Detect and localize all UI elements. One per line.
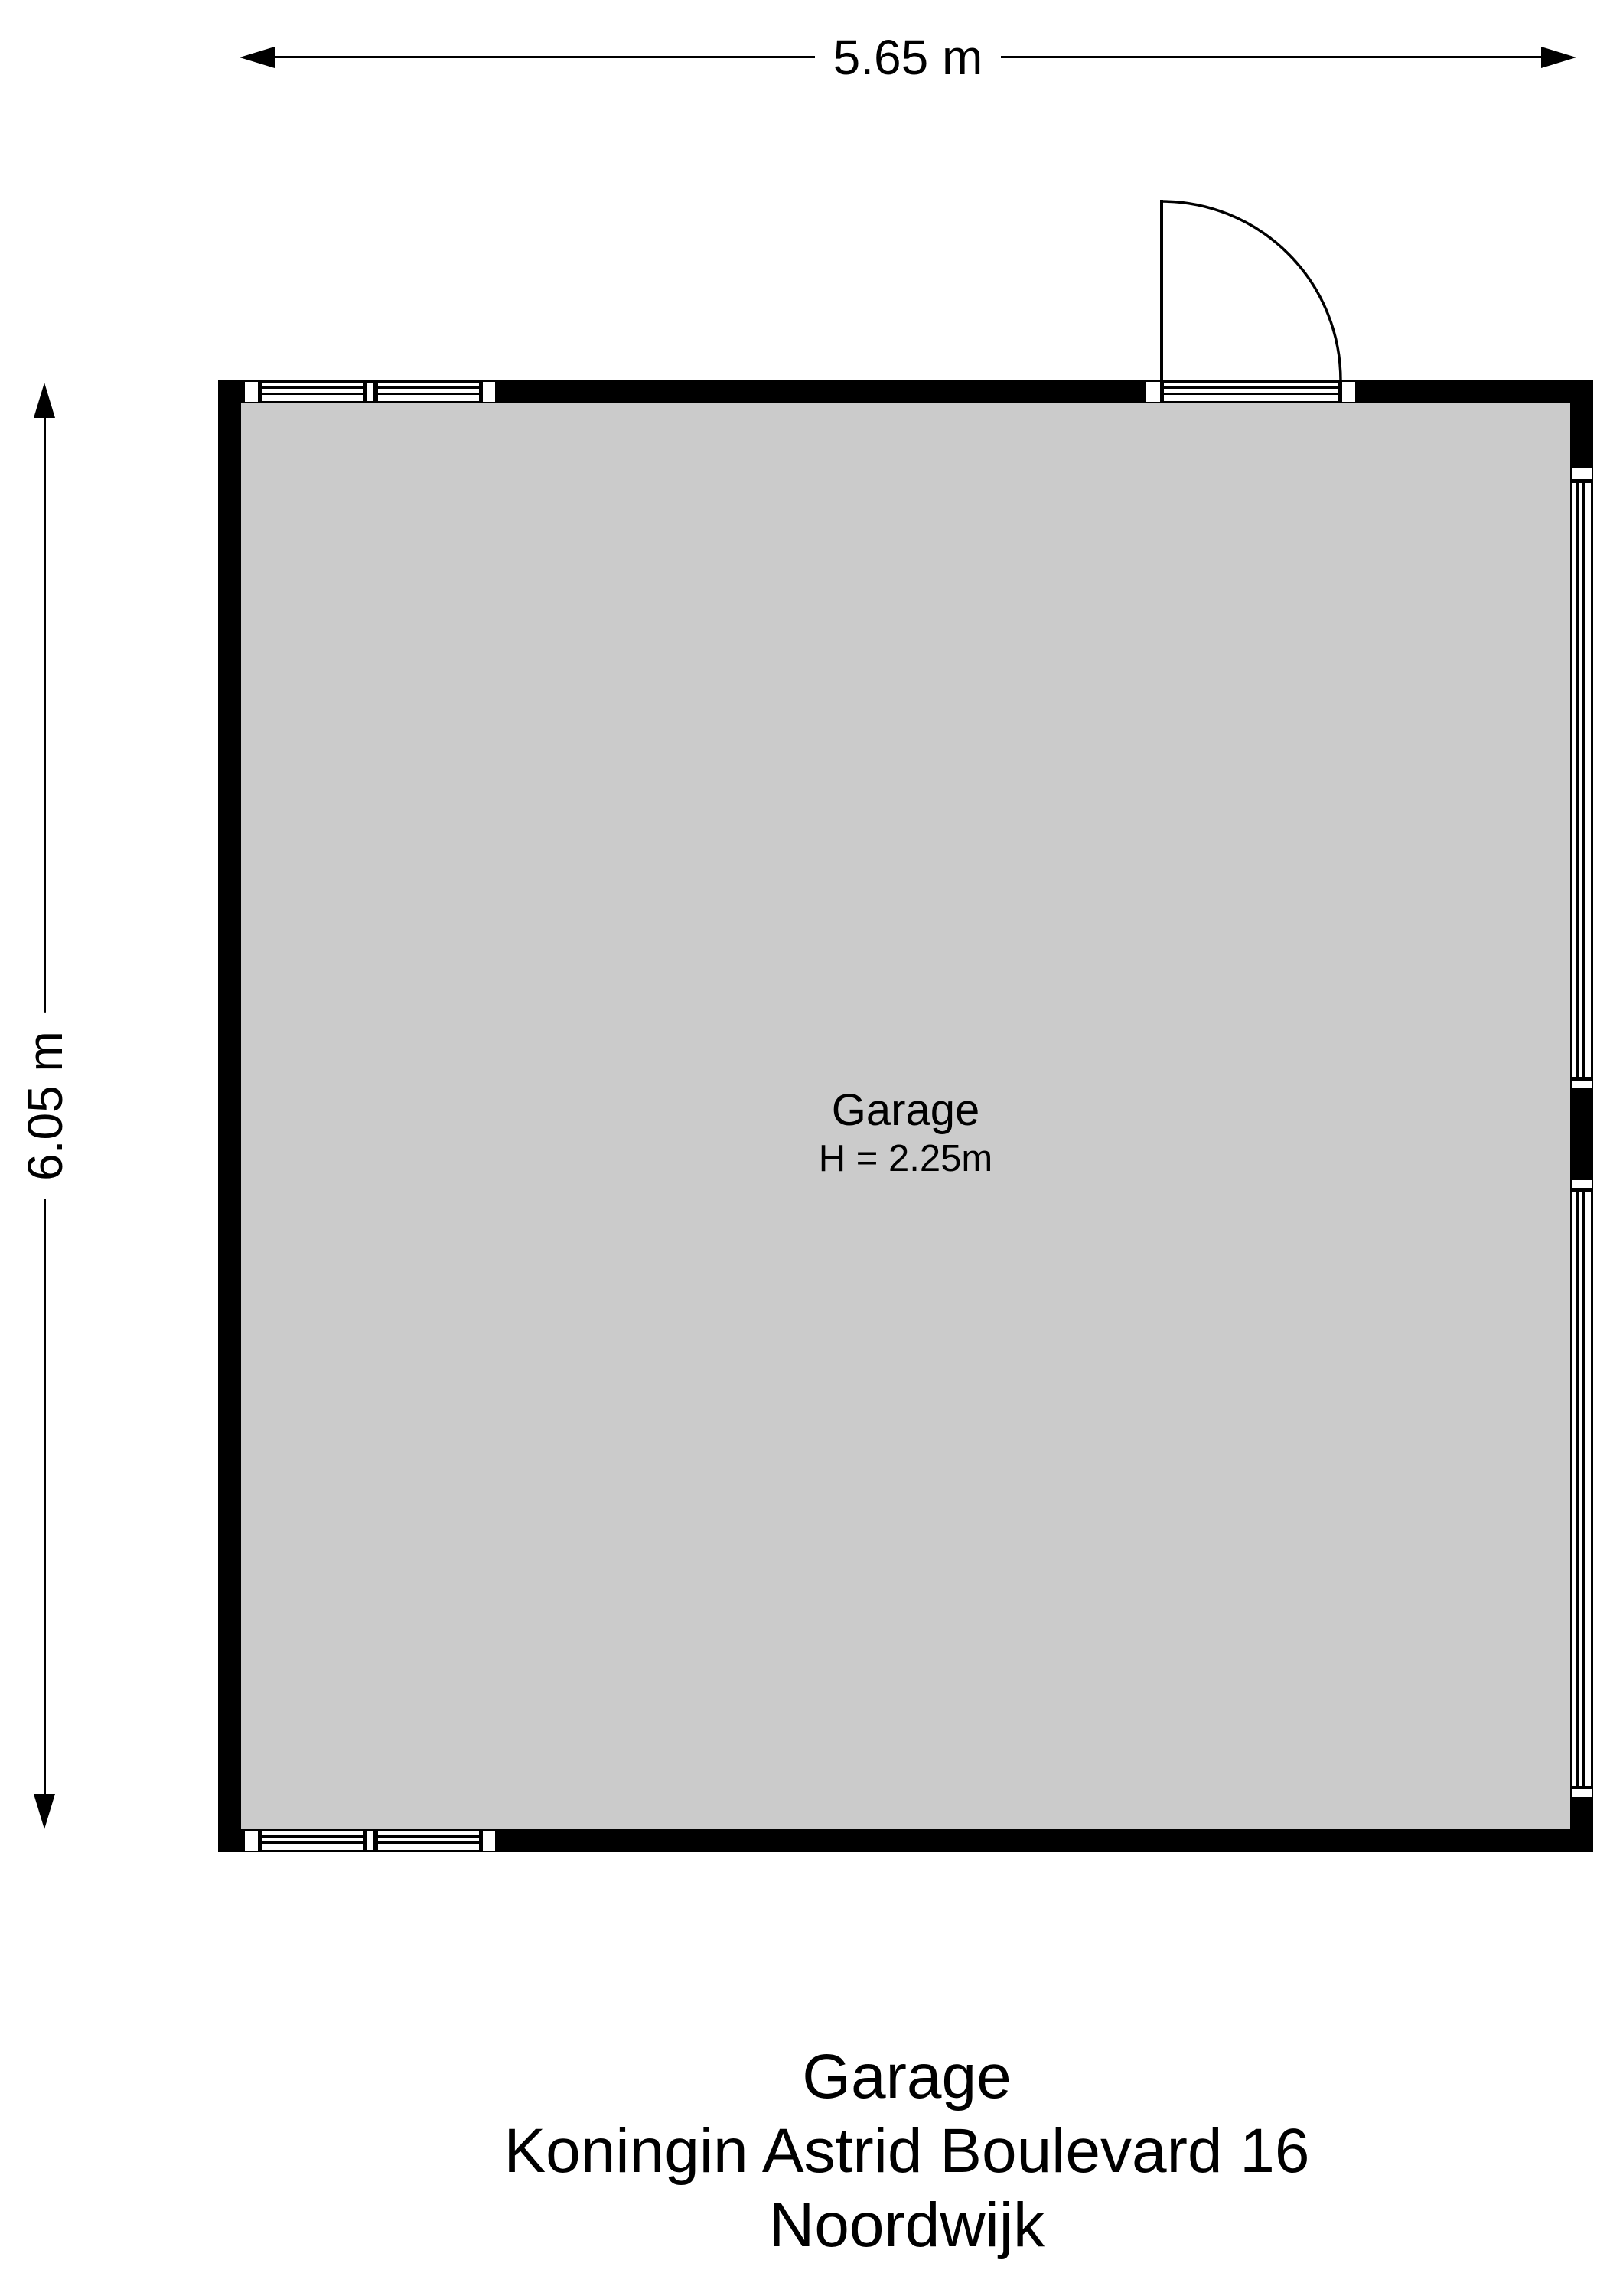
window-jamb xyxy=(1570,1079,1593,1090)
window xyxy=(376,380,481,403)
window-jamb xyxy=(481,380,497,403)
window xyxy=(376,1829,481,1852)
window-mullion xyxy=(365,380,376,403)
window-pane-line xyxy=(376,386,481,389)
window-pane-line xyxy=(376,1841,481,1844)
window-jamb xyxy=(243,380,259,403)
door-swing-arc-icon xyxy=(1159,197,1345,383)
window-pane-line xyxy=(1582,481,1585,1078)
arrow-up-icon xyxy=(34,383,55,418)
window-mullion xyxy=(365,1829,376,1852)
door-jamb xyxy=(1341,380,1357,403)
door-jamb xyxy=(1144,380,1162,403)
arrow-down-icon xyxy=(34,1794,55,1829)
width-dimension-label: 5.65 m xyxy=(815,21,1002,93)
window-pane-line xyxy=(260,393,364,395)
title-block: Garage Koningin Astrid Boulevard 16 Noor… xyxy=(191,2040,1622,2262)
window-pane-line xyxy=(1576,1190,1579,1787)
floor-plan-page: 5.65 m 6.05 m xyxy=(0,0,1623,2296)
window-pane-line xyxy=(1576,481,1579,1078)
height-dimension: 6.05 m xyxy=(15,383,84,1829)
threshold-line xyxy=(1162,393,1340,395)
window-pane-line xyxy=(260,1841,364,1844)
title-address: Koningin Astrid Boulevard 16 xyxy=(191,2114,1622,2188)
window-jamb xyxy=(481,1829,497,1852)
window-pane-line xyxy=(1582,1190,1585,1787)
title-city: Noordwijk xyxy=(191,2188,1622,2262)
door-threshold xyxy=(1162,380,1341,403)
arrow-left-icon xyxy=(240,47,275,68)
window-jamb xyxy=(1570,1179,1593,1189)
window-jamb xyxy=(1570,1788,1593,1799)
title-room: Garage xyxy=(191,2040,1622,2114)
window xyxy=(1570,1189,1593,1788)
room-ceiling-height: H = 2.25m xyxy=(241,1136,1570,1182)
room-name: Garage xyxy=(241,1085,1570,1136)
arrow-right-icon xyxy=(1541,47,1576,68)
threshold-line xyxy=(1162,386,1340,389)
window xyxy=(259,380,365,403)
window-pane-line xyxy=(260,1835,364,1838)
room-label: Garage H = 2.25m xyxy=(241,1085,1570,1182)
window-pane-line xyxy=(260,386,364,389)
window-jamb xyxy=(243,1829,259,1852)
window-pane-line xyxy=(376,1835,481,1838)
window xyxy=(1570,481,1593,1079)
window-jamb xyxy=(1570,467,1593,481)
window-pane-line xyxy=(376,393,481,395)
window xyxy=(259,1829,365,1852)
width-dimension: 5.65 m xyxy=(240,21,1576,93)
height-dimension-label: 6.05 m xyxy=(17,1013,73,1199)
